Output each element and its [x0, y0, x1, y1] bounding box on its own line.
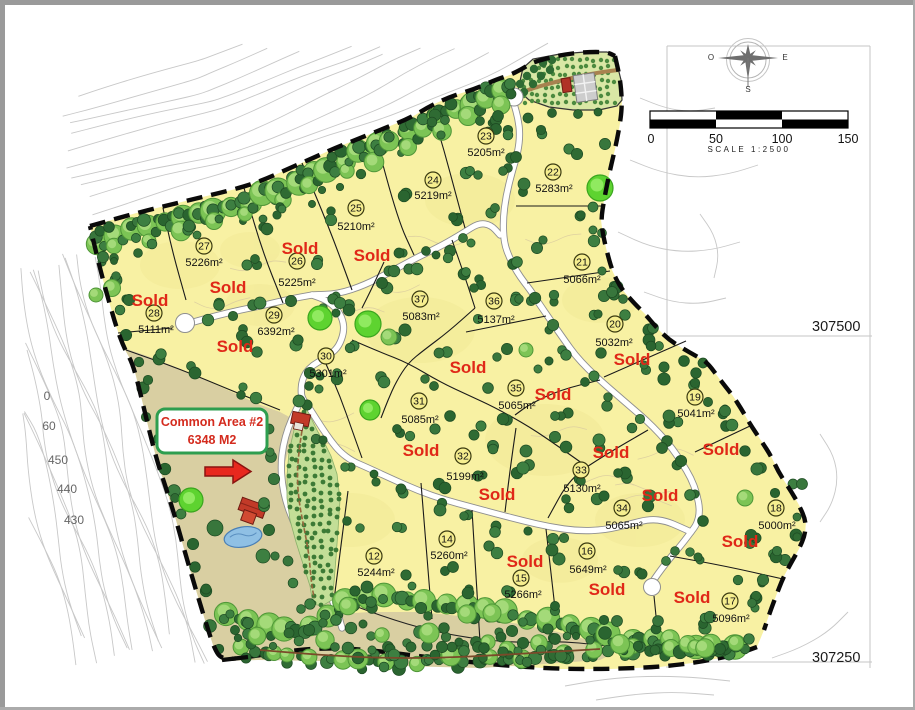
svg-text:5301m²: 5301m² [309, 368, 347, 380]
svg-text:5111m²: 5111m² [138, 324, 174, 336]
svg-text:Sold: Sold [507, 552, 544, 571]
svg-text:5205m²: 5205m² [467, 147, 505, 159]
svg-text:5210m²: 5210m² [337, 221, 375, 233]
svg-text:5041m²: 5041m² [677, 408, 715, 420]
svg-text:5137m²: 5137m² [477, 314, 515, 326]
svg-text:12: 12 [368, 551, 380, 563]
svg-text:Sold: Sold [217, 337, 254, 356]
svg-text:25: 25 [350, 203, 362, 215]
svg-text:Sold: Sold [703, 440, 740, 459]
svg-text:24: 24 [427, 175, 439, 187]
svg-text:E: E [782, 53, 787, 62]
svg-text:Sold: Sold [593, 443, 630, 462]
svg-text:Sold: Sold [674, 588, 711, 607]
svg-text:Sold: Sold [479, 485, 516, 504]
svg-text:21: 21 [576, 257, 588, 269]
svg-text:15: 15 [515, 573, 527, 585]
svg-text:5219m²: 5219m² [414, 190, 452, 202]
svg-text:5283m²: 5283m² [535, 183, 573, 195]
svg-text:5226m²: 5226m² [185, 257, 223, 269]
svg-text:6348 M2: 6348 M2 [188, 433, 237, 447]
svg-text:150: 150 [838, 132, 859, 146]
svg-text:Sold: Sold [354, 246, 391, 265]
svg-text:31: 31 [413, 396, 425, 408]
svg-text:27: 27 [198, 241, 210, 253]
svg-text:16: 16 [581, 546, 593, 558]
svg-text:5065m²: 5065m² [605, 520, 643, 532]
svg-text:0: 0 [44, 389, 51, 403]
svg-text:20: 20 [609, 319, 621, 331]
svg-text:5260m²: 5260m² [430, 550, 468, 562]
svg-text:Sold: Sold [722, 532, 759, 551]
svg-text:Sold: Sold [614, 350, 651, 369]
svg-text:19: 19 [689, 392, 701, 404]
svg-text:17: 17 [724, 596, 736, 608]
svg-text:Sold: Sold [535, 385, 572, 404]
svg-text:307500: 307500 [812, 319, 860, 335]
svg-text:307250: 307250 [812, 650, 860, 666]
svg-text:5096m²: 5096m² [712, 613, 750, 625]
svg-text:Sold: Sold [450, 358, 487, 377]
svg-text:22: 22 [547, 167, 559, 179]
svg-text:100: 100 [772, 132, 793, 146]
svg-text:29: 29 [268, 310, 280, 322]
svg-text:35: 35 [510, 383, 522, 395]
svg-text:5130m²: 5130m² [563, 483, 601, 495]
svg-text:Sold: Sold [210, 278, 247, 297]
svg-text:32: 32 [457, 451, 469, 463]
svg-text:37: 37 [414, 294, 426, 306]
svg-text:Sold: Sold [132, 291, 169, 310]
svg-text:O: O [708, 53, 714, 62]
svg-text:23: 23 [480, 131, 492, 143]
svg-text:34: 34 [616, 503, 628, 515]
svg-text:5266m²: 5266m² [504, 589, 542, 601]
svg-text:430: 430 [64, 513, 84, 527]
svg-text:5066m²: 5066m² [563, 274, 601, 286]
svg-text:5032m²: 5032m² [595, 337, 633, 349]
svg-text:36: 36 [488, 296, 500, 308]
svg-text:Sold: Sold [403, 441, 440, 460]
svg-text:Sold: Sold [589, 580, 626, 599]
svg-text:450: 450 [48, 453, 68, 467]
svg-text:50: 50 [709, 132, 723, 146]
svg-text:Sold: Sold [642, 486, 679, 505]
svg-text:14: 14 [441, 534, 453, 546]
svg-text:5065m²: 5065m² [498, 400, 536, 412]
svg-text:0: 0 [648, 132, 655, 146]
svg-text:18: 18 [770, 503, 782, 515]
svg-text:30: 30 [320, 351, 332, 363]
svg-text:6392m²: 6392m² [257, 326, 295, 338]
svg-text:33: 33 [575, 465, 587, 477]
svg-text:60: 60 [42, 419, 56, 433]
svg-text:Sold: Sold [282, 239, 319, 258]
svg-text:440: 440 [57, 482, 77, 496]
svg-text:SCALE 1:2500: SCALE 1:2500 [708, 145, 791, 154]
svg-text:5199m²: 5199m² [446, 471, 484, 483]
svg-text:5649m²: 5649m² [569, 564, 607, 576]
svg-text:Common Area #2: Common Area #2 [161, 415, 263, 429]
svg-text:S: S [745, 85, 750, 94]
svg-text:5083m²: 5083m² [402, 311, 440, 323]
svg-text:5244m²: 5244m² [357, 567, 395, 579]
svg-text:5225m²: 5225m² [278, 277, 316, 289]
svg-text:5085m²: 5085m² [401, 414, 439, 426]
svg-text:5000m²: 5000m² [758, 520, 796, 532]
